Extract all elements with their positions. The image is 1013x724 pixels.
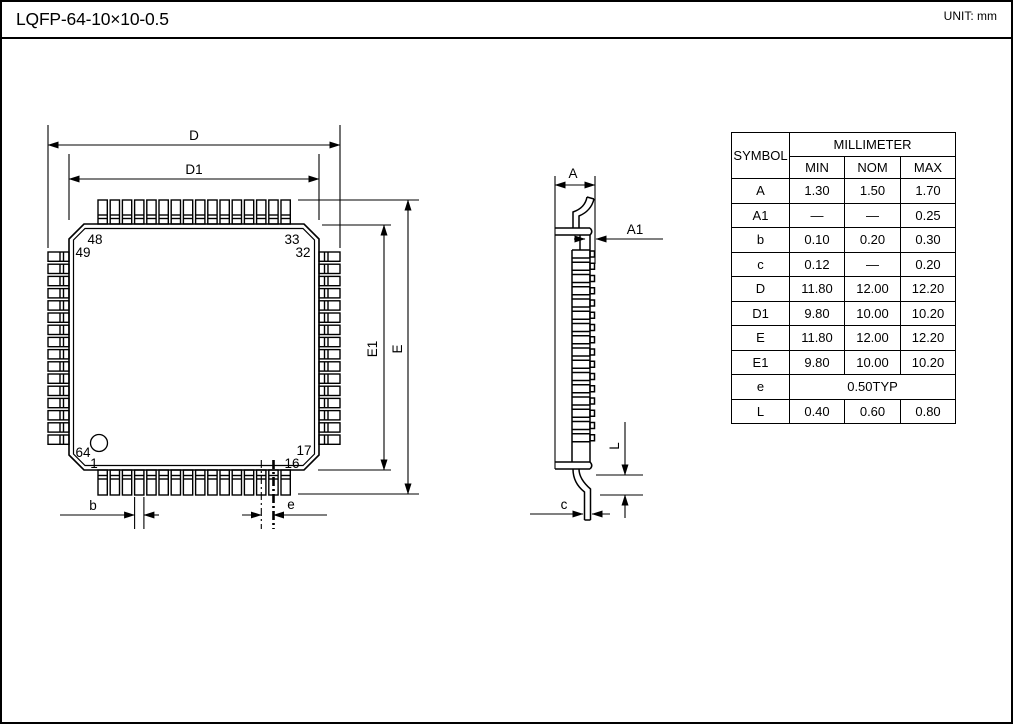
table-cell: 11.80 <box>790 277 845 302</box>
table-cell: — <box>845 252 901 277</box>
dim-A1: A1 <box>574 222 663 239</box>
table-cell: 12.20 <box>901 277 956 302</box>
dim-label-E: E <box>390 344 405 353</box>
table-cell: 10.20 <box>901 350 956 375</box>
pin-label-16: 16 <box>284 456 299 471</box>
table-cell: 0.60 <box>845 399 901 424</box>
table-cell: 10.00 <box>845 350 901 375</box>
dim-label-E1: E1 <box>365 341 380 358</box>
table-cell: D <box>732 277 790 302</box>
table-cell: 1.30 <box>790 179 845 204</box>
side-view: A <box>530 166 663 520</box>
table-cell: 11.80 <box>790 326 845 351</box>
dim-b: b <box>60 497 159 529</box>
pins-top-side <box>98 200 290 224</box>
table-cell: e <box>732 375 790 400</box>
dim-label-A1: A1 <box>627 222 644 237</box>
table-cell: E <box>732 326 790 351</box>
table-cell: 1.50 <box>845 179 901 204</box>
table-cell: — <box>845 203 901 228</box>
table-cell: E1 <box>732 350 790 375</box>
dimension-table: SYMBOL MILLIMETER MIN NOM MAX A1.301.501… <box>731 132 956 424</box>
table-cell: A1 <box>732 203 790 228</box>
table-row: A1.301.501.70 <box>732 179 956 204</box>
table-cell: D1 <box>732 301 790 326</box>
top-view: 48 49 33 32 64 1 17 16 D D1 <box>48 125 419 529</box>
table-cell: 0.20 <box>901 252 956 277</box>
dim-label-L: L <box>607 442 622 450</box>
table-cell: — <box>790 203 845 228</box>
table-row: E19.8010.0010.20 <box>732 350 956 375</box>
pin-label-32: 32 <box>295 245 310 260</box>
col-header-millimeter: MILLIMETER <box>790 133 956 157</box>
side-body-profile <box>555 197 595 520</box>
table-cell: 0.12 <box>790 252 845 277</box>
table-cell: 9.80 <box>790 350 845 375</box>
table-cell: 12.00 <box>845 326 901 351</box>
table-cell: 10.20 <box>901 301 956 326</box>
pins-right-side <box>319 252 340 444</box>
table-row: e0.50TYP <box>732 375 956 400</box>
col-header-min: MIN <box>790 157 845 179</box>
pin1-indicator-circle <box>91 435 108 452</box>
table-cell: 10.00 <box>845 301 901 326</box>
pin-label-1: 1 <box>90 456 98 471</box>
table-cell: c <box>732 252 790 277</box>
table-cell: A <box>732 179 790 204</box>
table-cell: 0.50TYP <box>790 375 956 400</box>
package-body-outline <box>69 224 319 470</box>
table-cell: L <box>732 399 790 424</box>
table-row: D19.8010.0010.20 <box>732 301 956 326</box>
dim-L: L <box>596 422 643 518</box>
table-cell: 0.40 <box>790 399 845 424</box>
col-header-max: MAX <box>901 157 956 179</box>
col-header-symbol: SYMBOL <box>732 133 790 179</box>
table-cell: 9.80 <box>790 301 845 326</box>
table-cell: 0.30 <box>901 228 956 253</box>
pins-left-side <box>48 252 69 444</box>
table-cell: 12.00 <box>845 277 901 302</box>
dim-D: D <box>48 125 340 248</box>
lead-stack <box>572 250 595 442</box>
pin-label-49: 49 <box>75 245 90 260</box>
dim-c: c <box>530 497 610 514</box>
table-cell: 12.20 <box>901 326 956 351</box>
table-row: D11.8012.0012.20 <box>732 277 956 302</box>
table-cell: 0.80 <box>901 399 956 424</box>
pin-label-64: 64 <box>75 445 91 460</box>
table-cell: b <box>732 228 790 253</box>
dim-label-b: b <box>89 498 97 513</box>
table-cell: 0.20 <box>845 228 901 253</box>
table-cell: 1.70 <box>901 179 956 204</box>
dim-label-D: D <box>189 128 199 143</box>
pin-number-labels: 48 49 33 32 64 1 17 16 <box>75 232 311 471</box>
table-row: A1——0.25 <box>732 203 956 228</box>
dim-label-c: c <box>561 497 568 512</box>
dim-label-A: A <box>568 166 577 181</box>
datasheet-page: LQFP-64-10×10-0.5 UNIT: mm 48 <box>0 0 1013 724</box>
dim-E: E <box>298 200 419 494</box>
col-header-nom: NOM <box>845 157 901 179</box>
table-row: L0.400.600.80 <box>732 399 956 424</box>
table-row: c0.12—0.20 <box>732 252 956 277</box>
table-cell: 0.25 <box>901 203 956 228</box>
dim-label-D1: D1 <box>185 162 202 177</box>
dim-label-e: e <box>287 497 295 512</box>
table-cell: 0.10 <box>790 228 845 253</box>
table-row: b0.100.200.30 <box>732 228 956 253</box>
table-row: E11.8012.0012.20 <box>732 326 956 351</box>
